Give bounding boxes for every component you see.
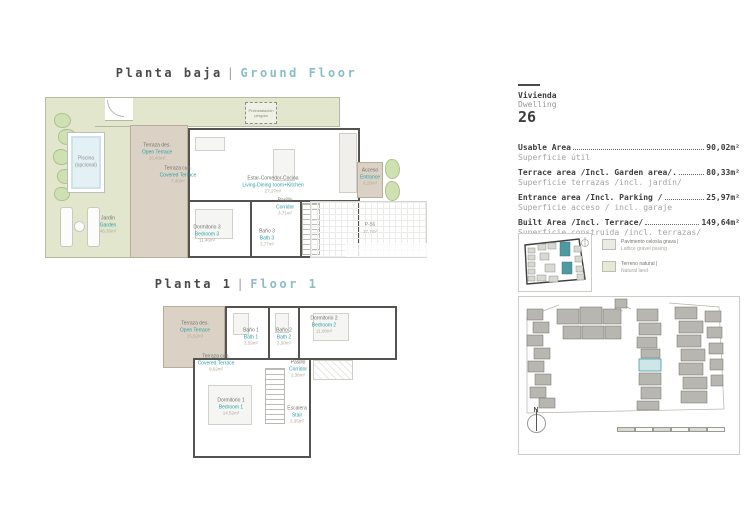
info-panel: Vivienda Dwelling 26 Usable Area90,02m² … [518,84,740,243]
area-summary: Usable Area90,02m² Superficie útil Terra… [518,143,740,237]
ground-floor-title: Planta baja|Ground Floor [45,66,428,80]
area-row-sub: Superficie acceso / incl. garaje [518,203,740,212]
room-label-bedroom1: Dormitorio 1Bedroom 114,52m² [217,398,244,417]
legend-item: Pavimento celosía grava |Lattice gravel … [602,239,678,253]
room-label-parking: P-5617,7m² [363,222,377,234]
mini-site-map [518,233,592,292]
sofa [195,137,225,151]
stairs [265,368,285,424]
north-arrow: N [525,407,547,441]
area-row-sub: Superficie terrazas /incl. jardín/ [518,178,740,187]
room-label-open-terrace: Terraza des.Open Terrace15,92m² [180,321,210,340]
room-label-bedroom2: Dormitorio 2Bedroom 211,08m² [310,316,337,335]
pergola-label-2: pérgola [254,113,267,118]
balcony-zone [313,360,353,380]
room-label-piscina: Piscina(opcional) [75,156,97,169]
divider-line [518,84,540,86]
room-label-open-terrace: Terraza des.Open Terrace16,40m² [142,143,172,162]
planter-icon [385,181,400,201]
area-row-sub: Superficie útil [518,153,740,162]
site-map: N [518,296,740,455]
floor1-plan: Terraza des.Open Terrace15,92m² Terraza … [163,303,397,460]
plant-icon [54,113,71,128]
title-es: Planta baja [116,66,223,80]
room-label-living: Estar-Comedor-CocinaLiving-Dining room+K… [242,176,303,195]
title-separator: | [236,277,246,291]
sun-lounger [87,207,100,247]
room-label-bedroom3: Dormitorio 3Bedroom 311,46m² [193,225,220,244]
highlighted-dwelling [639,359,661,371]
room-label-garden: JardínGarden46,36m² [100,216,117,235]
area-row: Built Area /Incl. Terrace/149,64m² [518,218,740,227]
dwelling-number: 26 [518,109,740,126]
locator-row: Pavimento celosía grava |Lattice gravel … [518,233,740,292]
sun-lounger [60,207,73,247]
dwelling-label-es: Vivienda [518,91,740,100]
room-label-corridor: PasilloCorridor2,38m² [289,360,307,379]
area-row: Usable Area90,02m² [518,143,740,152]
title-en: Ground Floor [241,66,358,80]
dwelling-label-en: Dwelling [518,100,740,109]
room-label-entrance: AccesoEntrance6,28m² [360,168,380,187]
room-label-bath1: Baño 1Bath 13,59m² [243,328,259,347]
title-separator: | [227,66,237,80]
interior-wall [250,200,252,258]
legend-item: Terreno natural |Natural land [602,261,678,275]
planter-icon [385,159,400,179]
map-legend: Pavimento celosía grava |Lattice gravel … [602,233,678,292]
area-row: Terrace area /Incl. Garden area/.80,33m² [518,168,740,177]
room-label-stair: EscaleraStair2,35m² [287,406,306,425]
floor1-title: Planta 1|Floor 1 [45,277,428,291]
scale-bar [617,427,725,432]
title-es: Planta 1 [155,277,233,291]
pergola-provision-box: Preinstalación pérgola [245,102,277,124]
room-label-bath3: Baño 3Bath 33,77m² [259,229,275,248]
title-en: Floor 1 [250,277,318,291]
room-label-bath2: Baño 2Bath 23,50m² [276,328,292,347]
legend-swatch-natural [602,261,616,272]
floorplan-sheet: Planta baja|Ground Floor Preinstalación … [0,0,756,528]
area-row: Entrance area /Incl. Parking /25,97m² [518,193,740,202]
kitchen-counter [339,133,357,193]
interior-wall [298,306,300,358]
garden-table [74,221,85,232]
mini-site-map-drawing [519,234,591,291]
ground-floor-plan: Preinstalación pérgola [45,97,428,260]
room-label-covered-terrace: Terraza cub.Covered Terrace7,40m² [160,166,197,185]
legend-swatch-gravel [602,239,616,250]
watermark [345,243,429,257]
interior-wall [268,306,270,358]
room-label-covered-terrace: Terraza cub.Covered Terrace9,62m² [198,354,235,373]
room-label-corridor: PasilloCorridor3,71m² [276,198,294,217]
